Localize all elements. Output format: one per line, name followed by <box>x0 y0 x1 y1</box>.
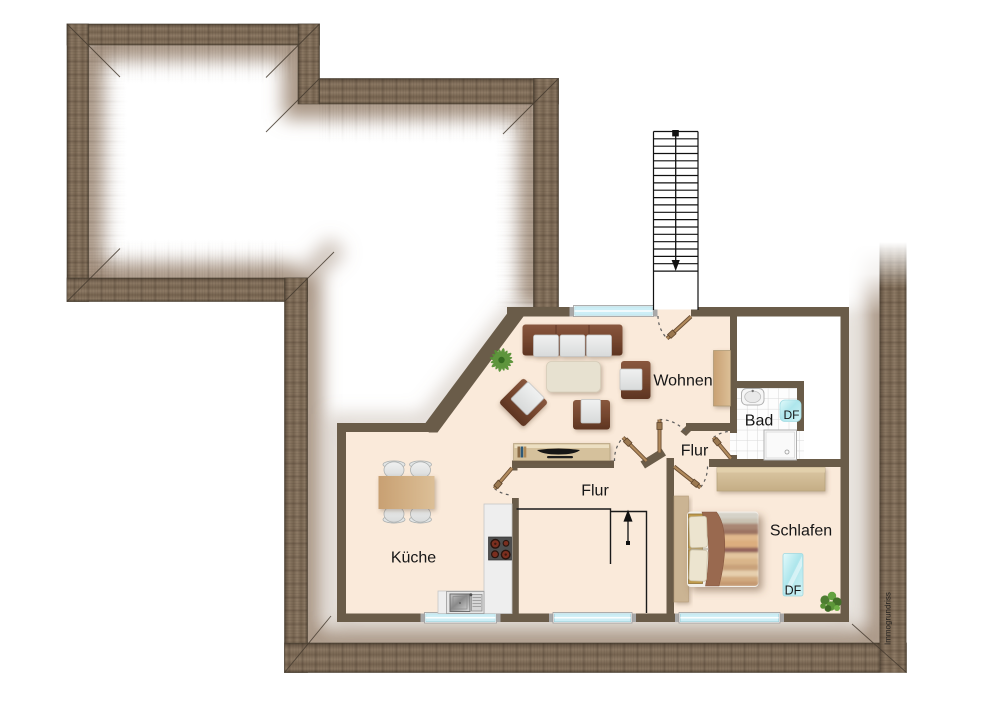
svg-text:Flur: Flur <box>581 483 609 500</box>
svg-text:Wohnen: Wohnen <box>653 373 712 390</box>
svg-text:Bad: Bad <box>745 413 773 430</box>
svg-text:Immogrundriss: Immogrundriss <box>884 592 893 645</box>
svg-text:Flur: Flur <box>681 443 709 460</box>
svg-text:DF: DF <box>785 584 802 598</box>
svg-text:Schlafen: Schlafen <box>770 523 832 540</box>
svg-text:DF: DF <box>784 408 800 422</box>
svg-text:Küche: Küche <box>391 550 436 567</box>
